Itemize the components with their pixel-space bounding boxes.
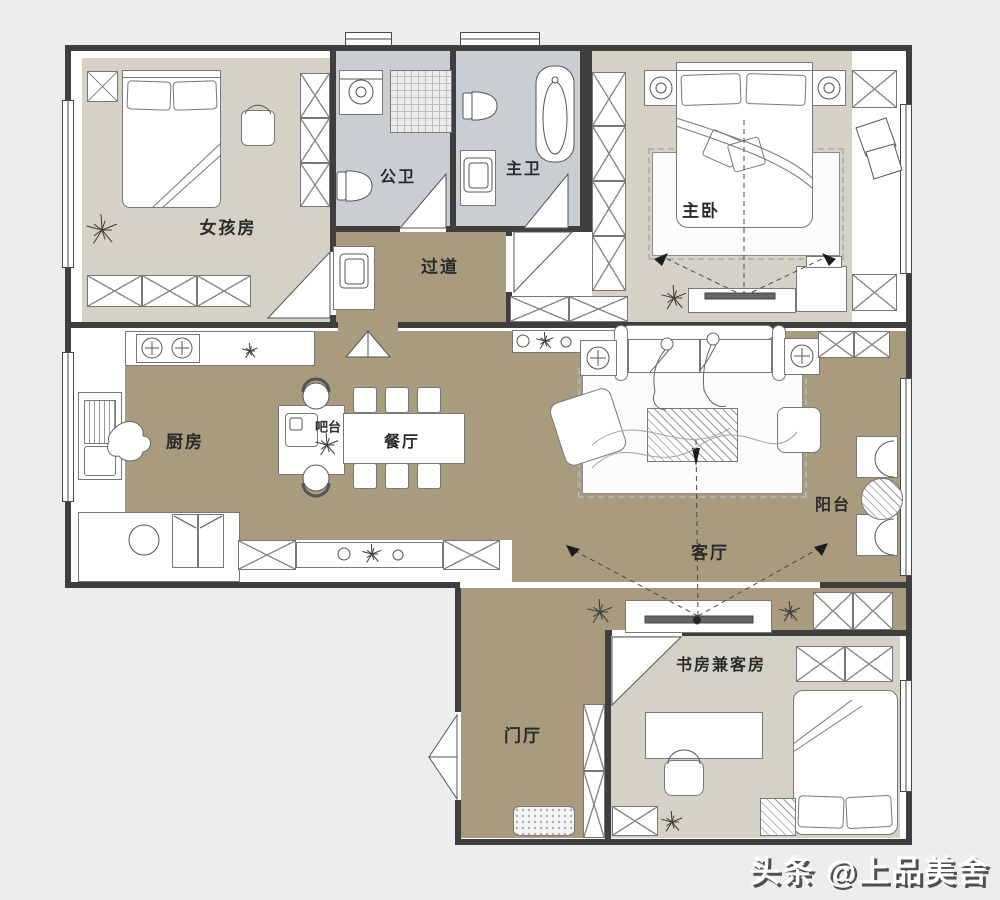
shower-area [390, 70, 452, 133]
pillow [745, 73, 806, 106]
low-cabinet [510, 296, 569, 322]
wall [506, 226, 512, 236]
wall [455, 839, 912, 845]
wall [330, 315, 336, 323]
dining-chair [353, 463, 377, 489]
sideboard-unit [443, 540, 500, 570]
wardrobe-unit [845, 646, 893, 682]
wardrobe-unit [796, 646, 845, 682]
pillow [127, 80, 172, 111]
wardrobe-unit [592, 236, 626, 291]
side-table [784, 338, 820, 375]
wardrobe-unit [813, 592, 853, 630]
room-label-master-bath: 主卫 [506, 155, 542, 179]
nightstand [644, 70, 678, 106]
window [900, 680, 912, 792]
wall [455, 588, 461, 712]
dish-rack [84, 400, 116, 444]
desk-chair [664, 760, 704, 796]
dining-chair [385, 463, 409, 489]
bar-sink [285, 413, 318, 447]
side-table [580, 340, 617, 376]
window [900, 378, 912, 576]
fridge-door [172, 514, 198, 568]
desk [645, 712, 763, 759]
wardrobe-unit [592, 126, 626, 181]
wall-duct [580, 45, 592, 232]
wardrobe-unit [592, 181, 626, 236]
fridge-door [198, 514, 224, 568]
balcony-chair [856, 436, 898, 478]
dining-chair [417, 387, 441, 413]
shoe-cabinet [583, 771, 605, 838]
window-bay [460, 32, 540, 46]
bed-headboard [676, 62, 813, 71]
side-table [777, 407, 821, 453]
wardrobe-unit [853, 592, 893, 630]
window [900, 104, 912, 274]
wardrobe-unit [300, 73, 330, 118]
shoe-cabinet [583, 704, 605, 771]
wardrobe-unit [87, 275, 142, 307]
dining-chair [385, 387, 409, 413]
wardrobe-unit [300, 118, 330, 163]
wall [336, 226, 400, 232]
cabinet-unit [818, 331, 854, 358]
room-label-kitchen: 厨房 [166, 428, 204, 453]
wall [605, 636, 611, 839]
wardrobe-unit [852, 274, 897, 311]
wall [330, 45, 336, 252]
sink-counter [460, 150, 496, 206]
wall [65, 582, 460, 588]
wall [455, 800, 461, 845]
floor-plan: 女孩房 公卫 主卫 主卧 过道 厨房 吧台 餐厅 客厅 阳台 门厅 书房兼客房 … [0, 0, 1000, 900]
wardrobe-unit [87, 71, 118, 102]
tv-console [625, 600, 772, 633]
nightstand [760, 798, 796, 836]
pillow [173, 80, 218, 111]
dining-south-floor [238, 512, 512, 540]
wardrobe-unit [592, 72, 626, 126]
armchair [241, 110, 275, 146]
sofa-seat [628, 339, 700, 373]
balcony-table [861, 478, 903, 520]
room-label-balcony: 阳台 [815, 491, 851, 515]
room-label-dining-room: 餐厅 [384, 428, 420, 452]
vanity-counter [333, 246, 375, 310]
sideboard-unit [238, 540, 296, 570]
tv-console [688, 288, 796, 313]
dining-chair [417, 463, 441, 489]
pillow [680, 73, 741, 106]
cabinet-unit [854, 331, 890, 358]
balcony-chair [856, 514, 898, 556]
bed-headboard [122, 70, 221, 78]
room-label-foyer: 门厅 [504, 722, 542, 747]
cabinet-unit [612, 806, 658, 836]
sofa-back [622, 325, 774, 340]
sofa-seat [700, 339, 772, 373]
pillow [797, 795, 844, 829]
sideboard [296, 542, 443, 568]
wardrobe-unit [197, 275, 251, 307]
room-label-corridor: 过道 [421, 253, 459, 278]
window [62, 100, 74, 268]
wardrobe-unit [142, 275, 197, 307]
window [62, 352, 74, 502]
window-bay [345, 32, 392, 46]
dresser [796, 266, 847, 312]
dresser-top [806, 256, 842, 268]
doormat [513, 806, 575, 836]
room-label-study-guest-room: 书房兼客房 [676, 651, 766, 675]
wall [65, 322, 338, 328]
washing-machine [339, 70, 383, 115]
room-label-bar-counter: 吧台 [315, 417, 341, 436]
coffee-table [647, 408, 738, 462]
room-label-girls-room: 女孩房 [200, 214, 257, 239]
pillow [845, 795, 893, 829]
room-label-living-room: 客厅 [691, 539, 729, 564]
dining-chair [353, 387, 377, 413]
cooktop [136, 334, 200, 363]
wardrobe-unit [852, 70, 897, 108]
room-label-public-bath: 公卫 [380, 163, 416, 187]
room-label-master-bedroom: 主卧 [682, 197, 720, 222]
kitchen-entry-floor [315, 331, 512, 366]
kitchen-sink [84, 446, 116, 476]
watermark: 头条 @上品美舍 [600, 846, 990, 891]
wall [820, 582, 912, 588]
nightstand [812, 70, 846, 106]
low-cabinet [569, 296, 628, 322]
wardrobe-unit [300, 163, 330, 207]
